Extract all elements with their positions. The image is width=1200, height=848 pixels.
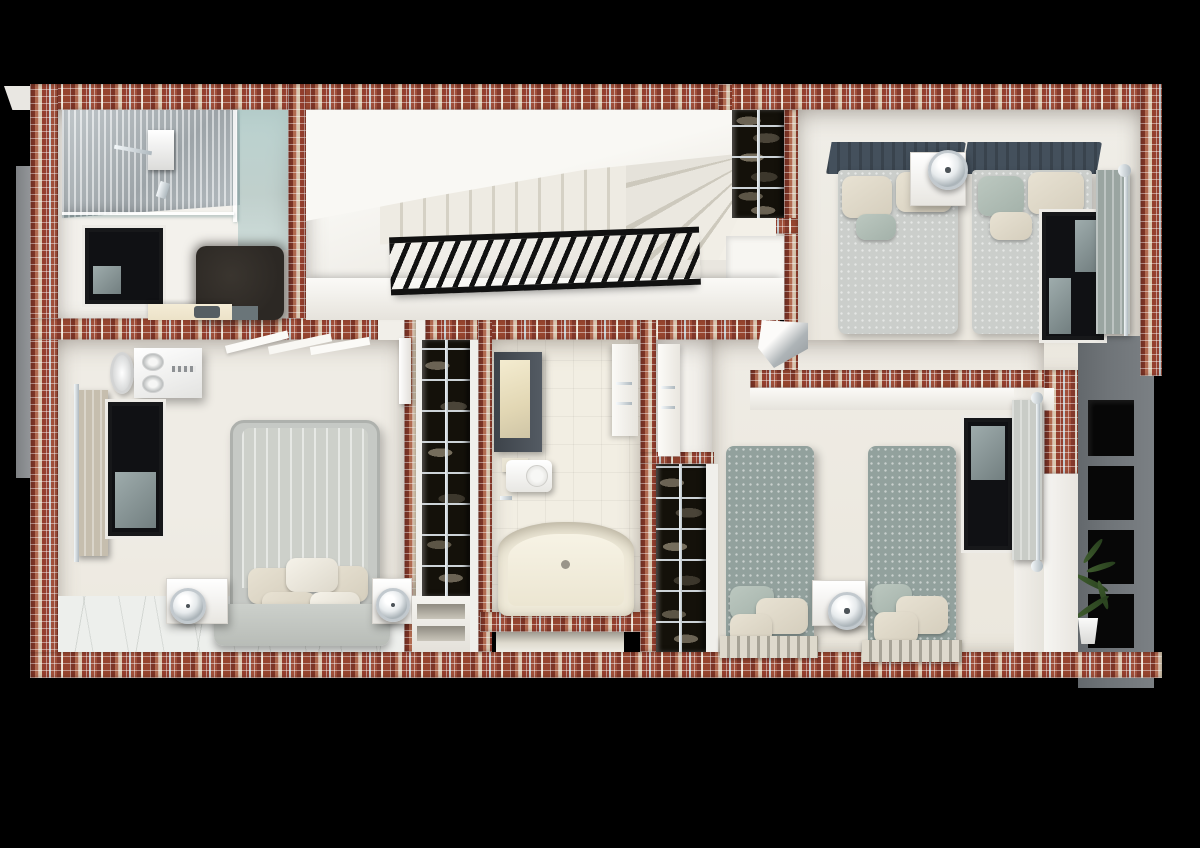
master-bed-foot-mattress	[214, 604, 390, 646]
curtain-rod-finial	[1118, 164, 1131, 177]
wall-bathroom-hall-divider	[288, 84, 306, 334]
linen-closet-pole	[757, 110, 760, 218]
ac-unit	[134, 348, 202, 398]
shoe-closet-frame-right	[706, 464, 718, 652]
wall-bottom	[30, 652, 1162, 678]
master-door-leaf	[399, 338, 411, 404]
master-door-opening	[378, 318, 425, 340]
master-lamp-left	[170, 588, 206, 624]
plant-pot	[1076, 618, 1100, 644]
towel-hook	[616, 382, 632, 385]
wall-wardrobe-right	[478, 318, 492, 652]
ensuite-vanity	[148, 304, 232, 320]
kids-curtain-finial	[1031, 560, 1043, 572]
bed4-slat-base	[862, 640, 962, 662]
wall-bathroom-right	[640, 318, 656, 652]
bathtub	[498, 522, 634, 616]
master-curtain	[76, 390, 108, 556]
window-pane	[125, 238, 155, 294]
kids-room-top-ledge	[750, 388, 1054, 410]
toilet-plumbing	[500, 496, 512, 500]
window-pane	[115, 472, 156, 528]
master-curtain-rod	[74, 384, 79, 562]
wardrobe-frame-right	[470, 340, 478, 652]
bed1-pillow	[842, 176, 892, 218]
ac-vent-grille	[172, 366, 196, 372]
stair-railing	[389, 227, 701, 296]
cubby-slot	[417, 604, 465, 619]
bed3-slat-base	[720, 636, 818, 658]
wardrobe-shoe-cubbies	[412, 596, 470, 652]
bathtub-drain	[561, 560, 570, 569]
shower-glass-edge	[62, 212, 234, 215]
window-pane	[971, 486, 1005, 542]
bed2-pillow	[990, 212, 1032, 240]
master-window	[108, 402, 163, 536]
toilet	[506, 460, 552, 492]
shower-glass-floor	[238, 110, 288, 250]
window-pane	[971, 426, 1005, 480]
window-pane	[93, 266, 121, 294]
cubby-slot	[417, 626, 465, 641]
towel-hook	[616, 402, 632, 405]
mirror-glass	[500, 360, 530, 438]
bed2-pillow	[978, 176, 1024, 216]
shower-glass-screen	[233, 110, 237, 222]
wall-kids-room-right-corner	[1044, 370, 1078, 474]
roof-corner-wedge	[4, 86, 32, 110]
ensuite-window	[85, 228, 163, 304]
curtain-rod	[1124, 166, 1128, 336]
ac-fan-circle	[142, 353, 164, 371]
window-pane	[1075, 278, 1097, 334]
bedroom-tr-lamp	[928, 150, 968, 190]
wardrobe-pole	[445, 340, 448, 596]
mirror-cabinet	[494, 352, 542, 452]
bathtub-basin	[508, 534, 624, 606]
kids-window	[964, 418, 1012, 550]
plant-leaf	[1082, 537, 1104, 565]
potted-plant	[1072, 520, 1132, 650]
vanity-sink-item	[194, 306, 220, 318]
wall-kids-room-top	[750, 370, 1054, 388]
ceiling-fan-vent	[110, 352, 134, 394]
towel-column	[612, 344, 638, 436]
master-pillow	[286, 558, 338, 592]
wall-kids-room-right-face	[1044, 474, 1078, 652]
vanity-side-cabinet	[232, 306, 258, 320]
wall-left	[30, 84, 58, 678]
window-pane	[115, 410, 156, 466]
under-bath-recess	[496, 632, 624, 652]
bedroom-tr-window	[1042, 212, 1104, 340]
bed2-pillow	[1028, 172, 1084, 214]
towel-hook	[661, 386, 675, 389]
ac-fan-circle	[142, 375, 164, 393]
corridor-hook-panel	[658, 344, 680, 456]
window-pane	[1049, 278, 1071, 334]
shoe-closet-pole	[679, 464, 682, 652]
planter-niche	[1088, 466, 1134, 520]
window-pane	[1049, 220, 1071, 272]
wall-right-upper	[1140, 84, 1162, 376]
toilet-seat	[526, 465, 548, 487]
plant-leaf	[1086, 559, 1116, 575]
master-lamp-right	[376, 588, 410, 622]
planter-niche	[1088, 400, 1134, 456]
floorplan-scene	[0, 0, 1200, 848]
bed1-pillow	[856, 214, 896, 240]
kids-lamp	[828, 592, 866, 630]
shower-tile-wall	[62, 110, 240, 218]
shower-boiler-unit	[148, 130, 174, 170]
towel-hook	[661, 406, 675, 409]
kids-curtain-rod	[1036, 396, 1040, 566]
window-pane	[1075, 220, 1097, 272]
kids-curtain-finial	[1031, 392, 1043, 404]
wall-top	[30, 84, 1162, 110]
